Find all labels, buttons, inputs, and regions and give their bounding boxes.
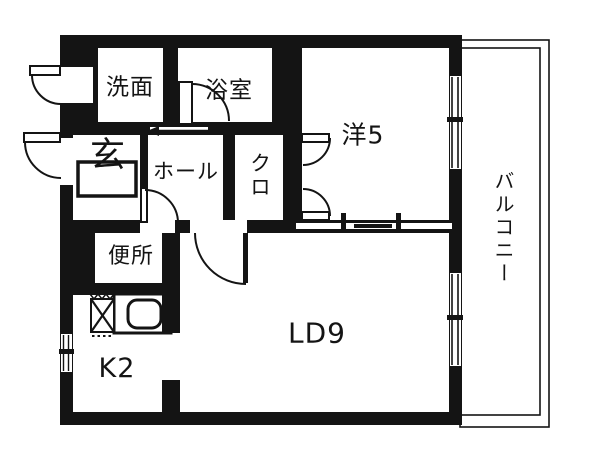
wall-bottom — [60, 412, 462, 425]
room-label-bathroom: 浴室 — [205, 78, 253, 103]
room-label-kitchen: K2 — [99, 354, 136, 384]
closet-door-bottom-icon — [302, 189, 330, 220]
toilet-door-icon — [141, 188, 178, 223]
wall-top — [60, 35, 462, 48]
wall-closet-western — [283, 135, 302, 220]
room-label-hall: ホール — [153, 160, 219, 183]
kitchen-fixtures — [90, 294, 171, 336]
wall-wash-bath — [163, 48, 178, 122]
wall-bath-western — [272, 35, 302, 122]
closet-door-top-icon — [302, 134, 330, 165]
opening-meterbox-door — [60, 67, 73, 103]
wall-hall-closet — [223, 135, 235, 220]
room-label-balcony: バルコニー — [492, 171, 514, 286]
room-label-western-room: 洋5 — [342, 121, 385, 149]
opening-ld-door — [190, 220, 247, 233]
stove-icon — [90, 294, 114, 336]
wall-toilet-left — [73, 233, 95, 283]
room-label-closet: クロ — [247, 152, 270, 200]
sink-icon — [128, 300, 161, 328]
meterbox-door-icon — [30, 66, 61, 104]
floor-plan: 洗面 浴室 洋5 玄 ホール クロ 便所 K2 LD9 バルコニー — [0, 0, 600, 450]
entrance-door-icon — [24, 133, 61, 178]
wall-kitchen-stub — [162, 380, 180, 412]
room-label-washroom: 洗面 — [106, 75, 154, 100]
opening-entrance-door — [60, 138, 73, 185]
ld-door-icon — [195, 233, 248, 284]
room-label-toilet: 便所 — [108, 245, 154, 269]
room-label-living-dining: LD9 — [288, 319, 346, 350]
meterbox-alcove — [73, 67, 93, 103]
room-label-entrance: 玄 — [90, 137, 126, 176]
